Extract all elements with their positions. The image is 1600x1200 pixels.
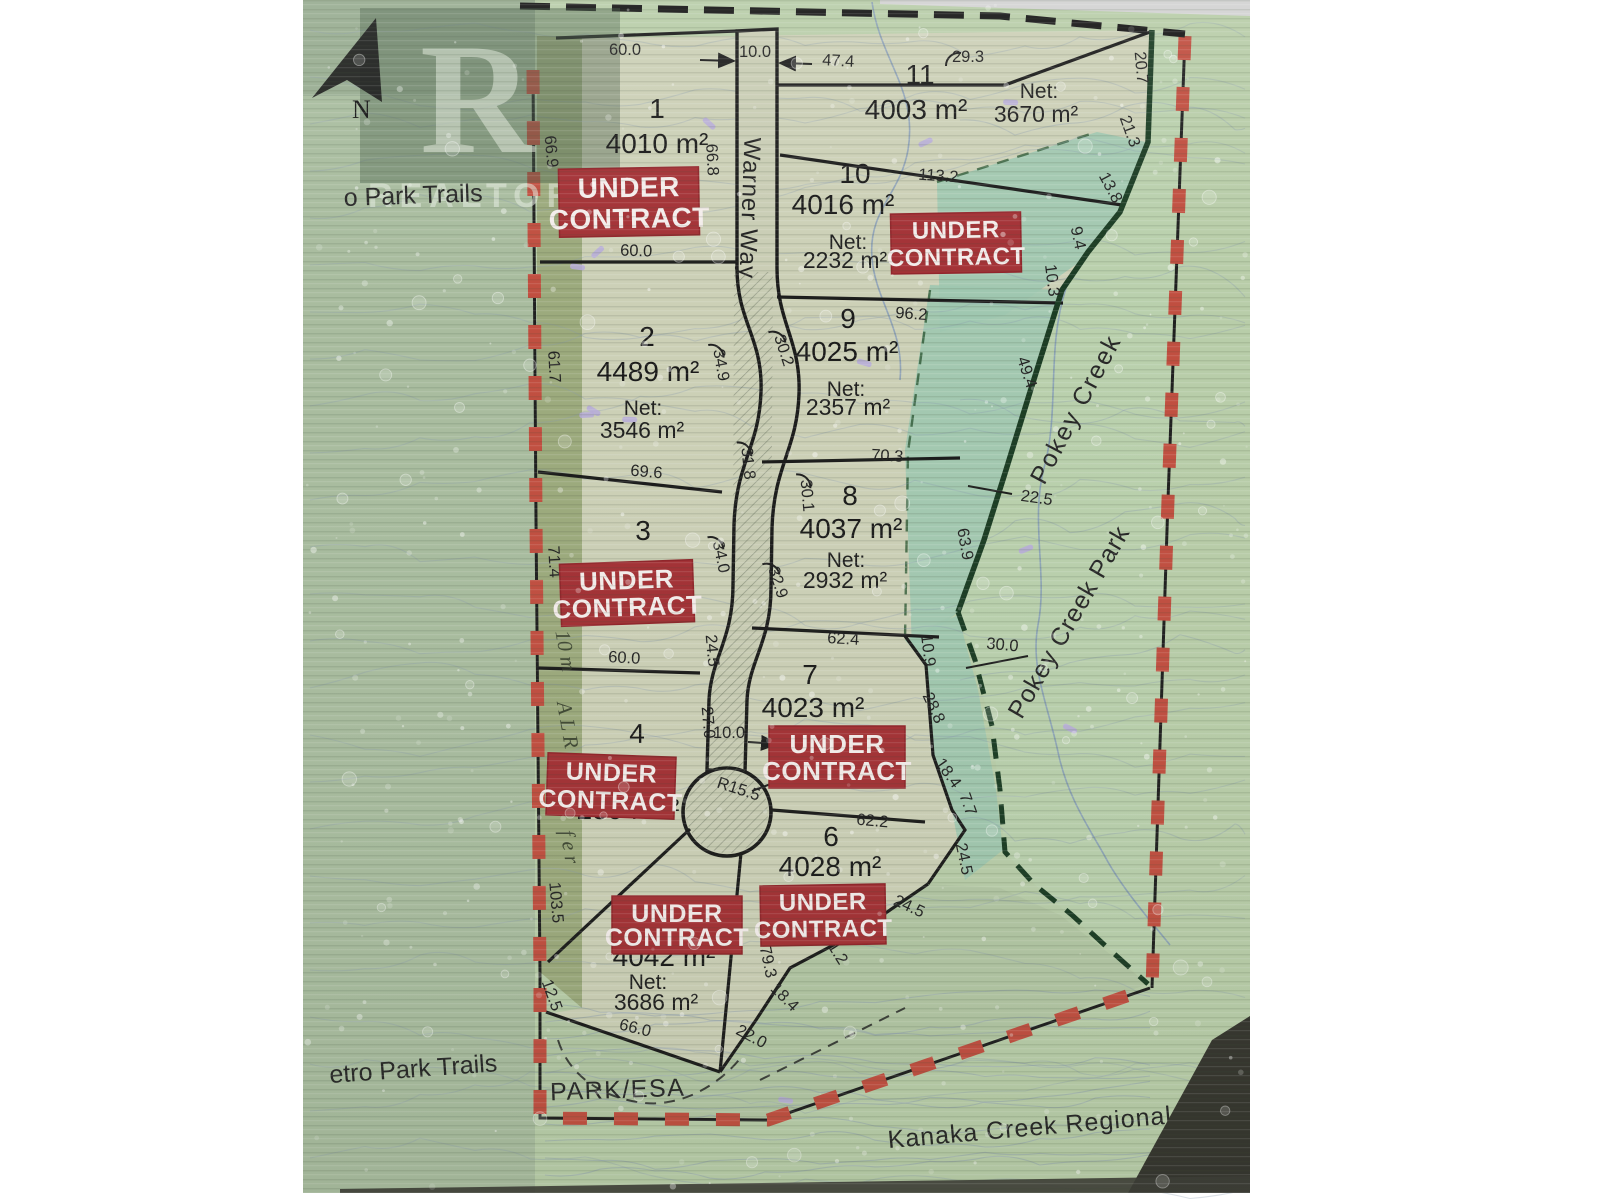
subdivision-plan-map: R REALTOR® N o Park Trailsetro Park Trai… [0,0,1600,1200]
sign-photo-page: R REALTOR® N o Park Trailsetro Park Trai… [0,0,1600,1200]
photo-sheen [303,0,1250,1193]
